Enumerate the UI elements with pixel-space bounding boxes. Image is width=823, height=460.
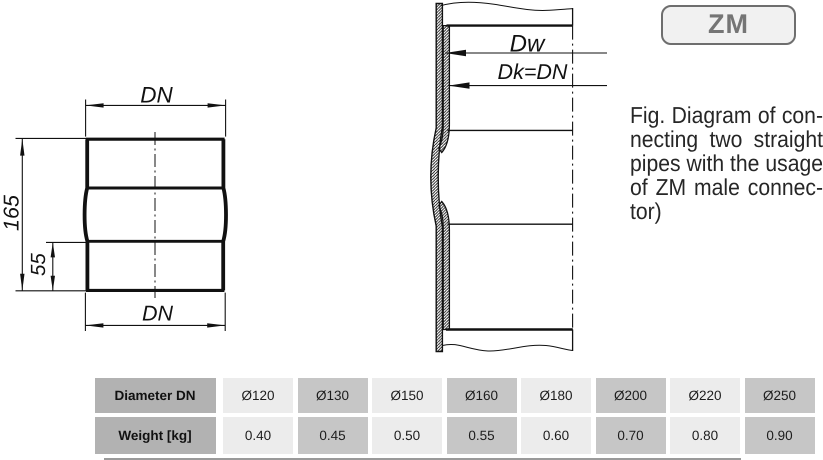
svg-text:55: 55 [27,253,50,276]
svg-text:Dw: Dw [510,31,546,58]
svg-text:DN: DN [142,302,174,326]
svg-text:DN: DN [140,83,173,108]
svg-text:165: 165 [0,194,24,231]
svg-text:Dk=DN: Dk=DN [498,60,568,84]
